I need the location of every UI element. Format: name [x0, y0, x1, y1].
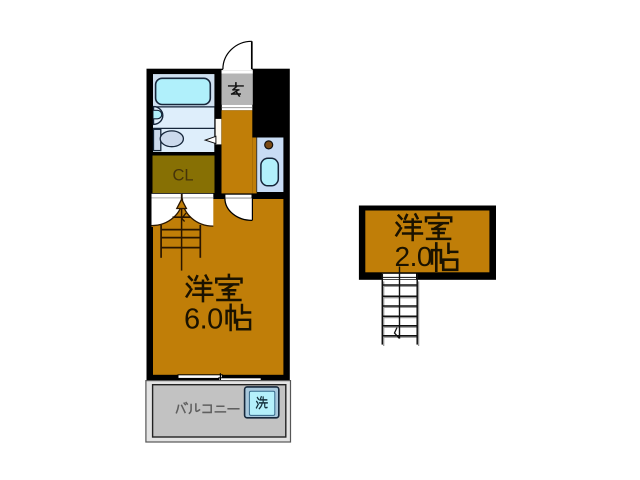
svg-text:CL: CL — [172, 166, 193, 184]
svg-text:6.0: 6.0 — [184, 303, 223, 335]
